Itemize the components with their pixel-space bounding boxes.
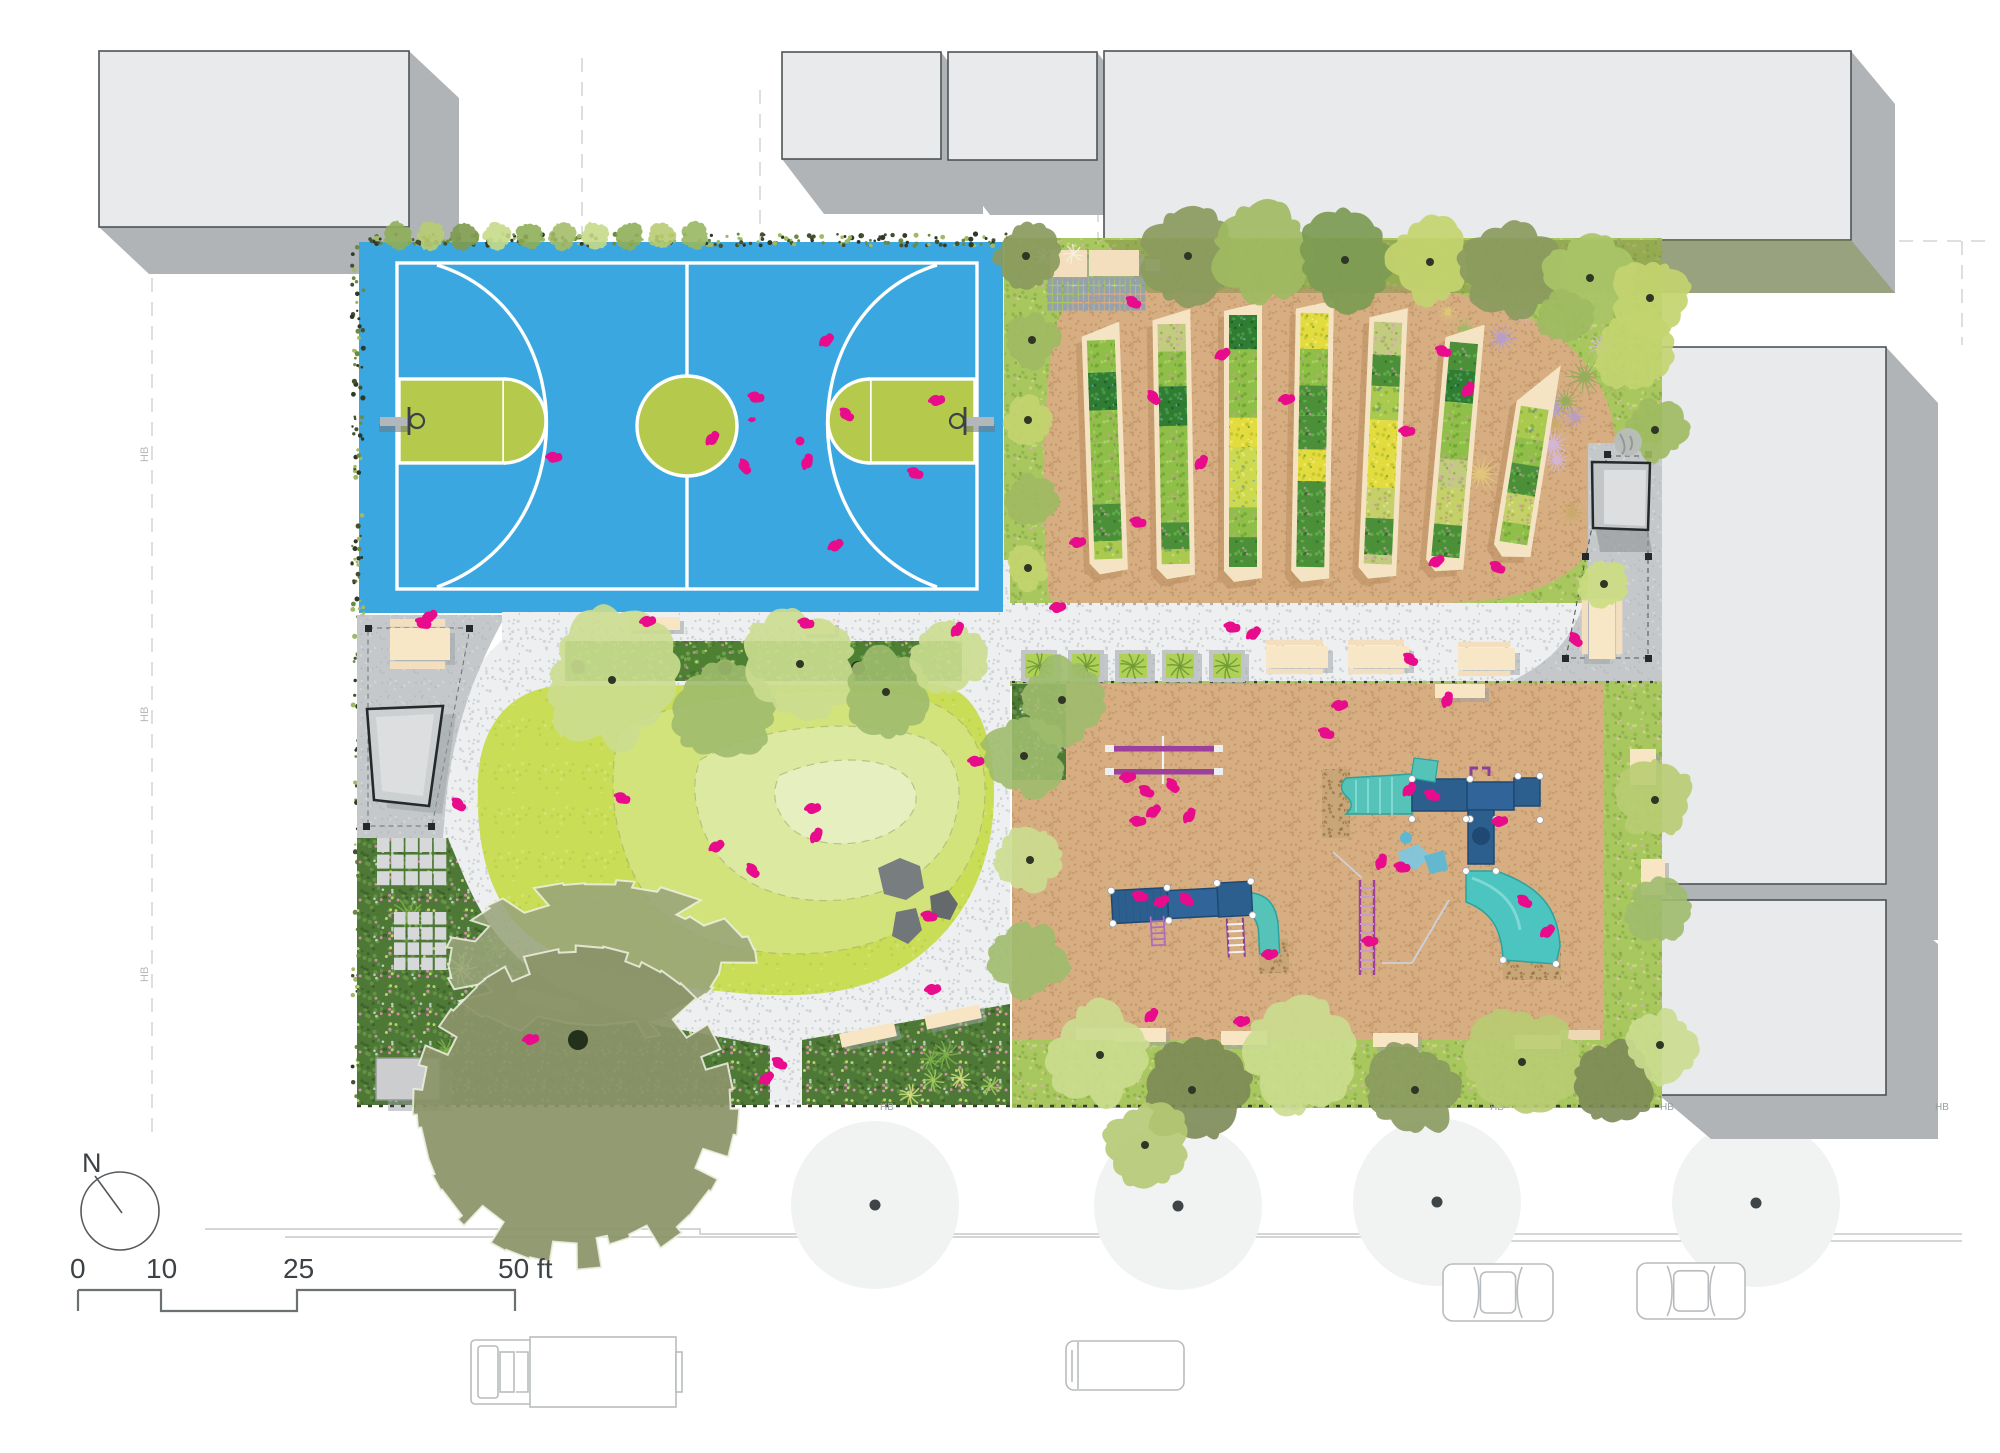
svg-text:HB: HB xyxy=(880,1102,894,1113)
svg-text:N: N xyxy=(82,1148,102,1178)
svg-text:10: 10 xyxy=(146,1253,177,1284)
svg-text:50 ft: 50 ft xyxy=(498,1253,553,1284)
svg-text:25: 25 xyxy=(283,1253,314,1284)
svg-text:0: 0 xyxy=(70,1253,86,1284)
svg-text:HB: HB xyxy=(1935,1102,1949,1113)
svg-text:HB: HB xyxy=(139,967,151,982)
svg-text:HB: HB xyxy=(139,707,151,722)
svg-text:HB: HB xyxy=(139,447,151,462)
svg-text:HB: HB xyxy=(1660,1102,1674,1113)
